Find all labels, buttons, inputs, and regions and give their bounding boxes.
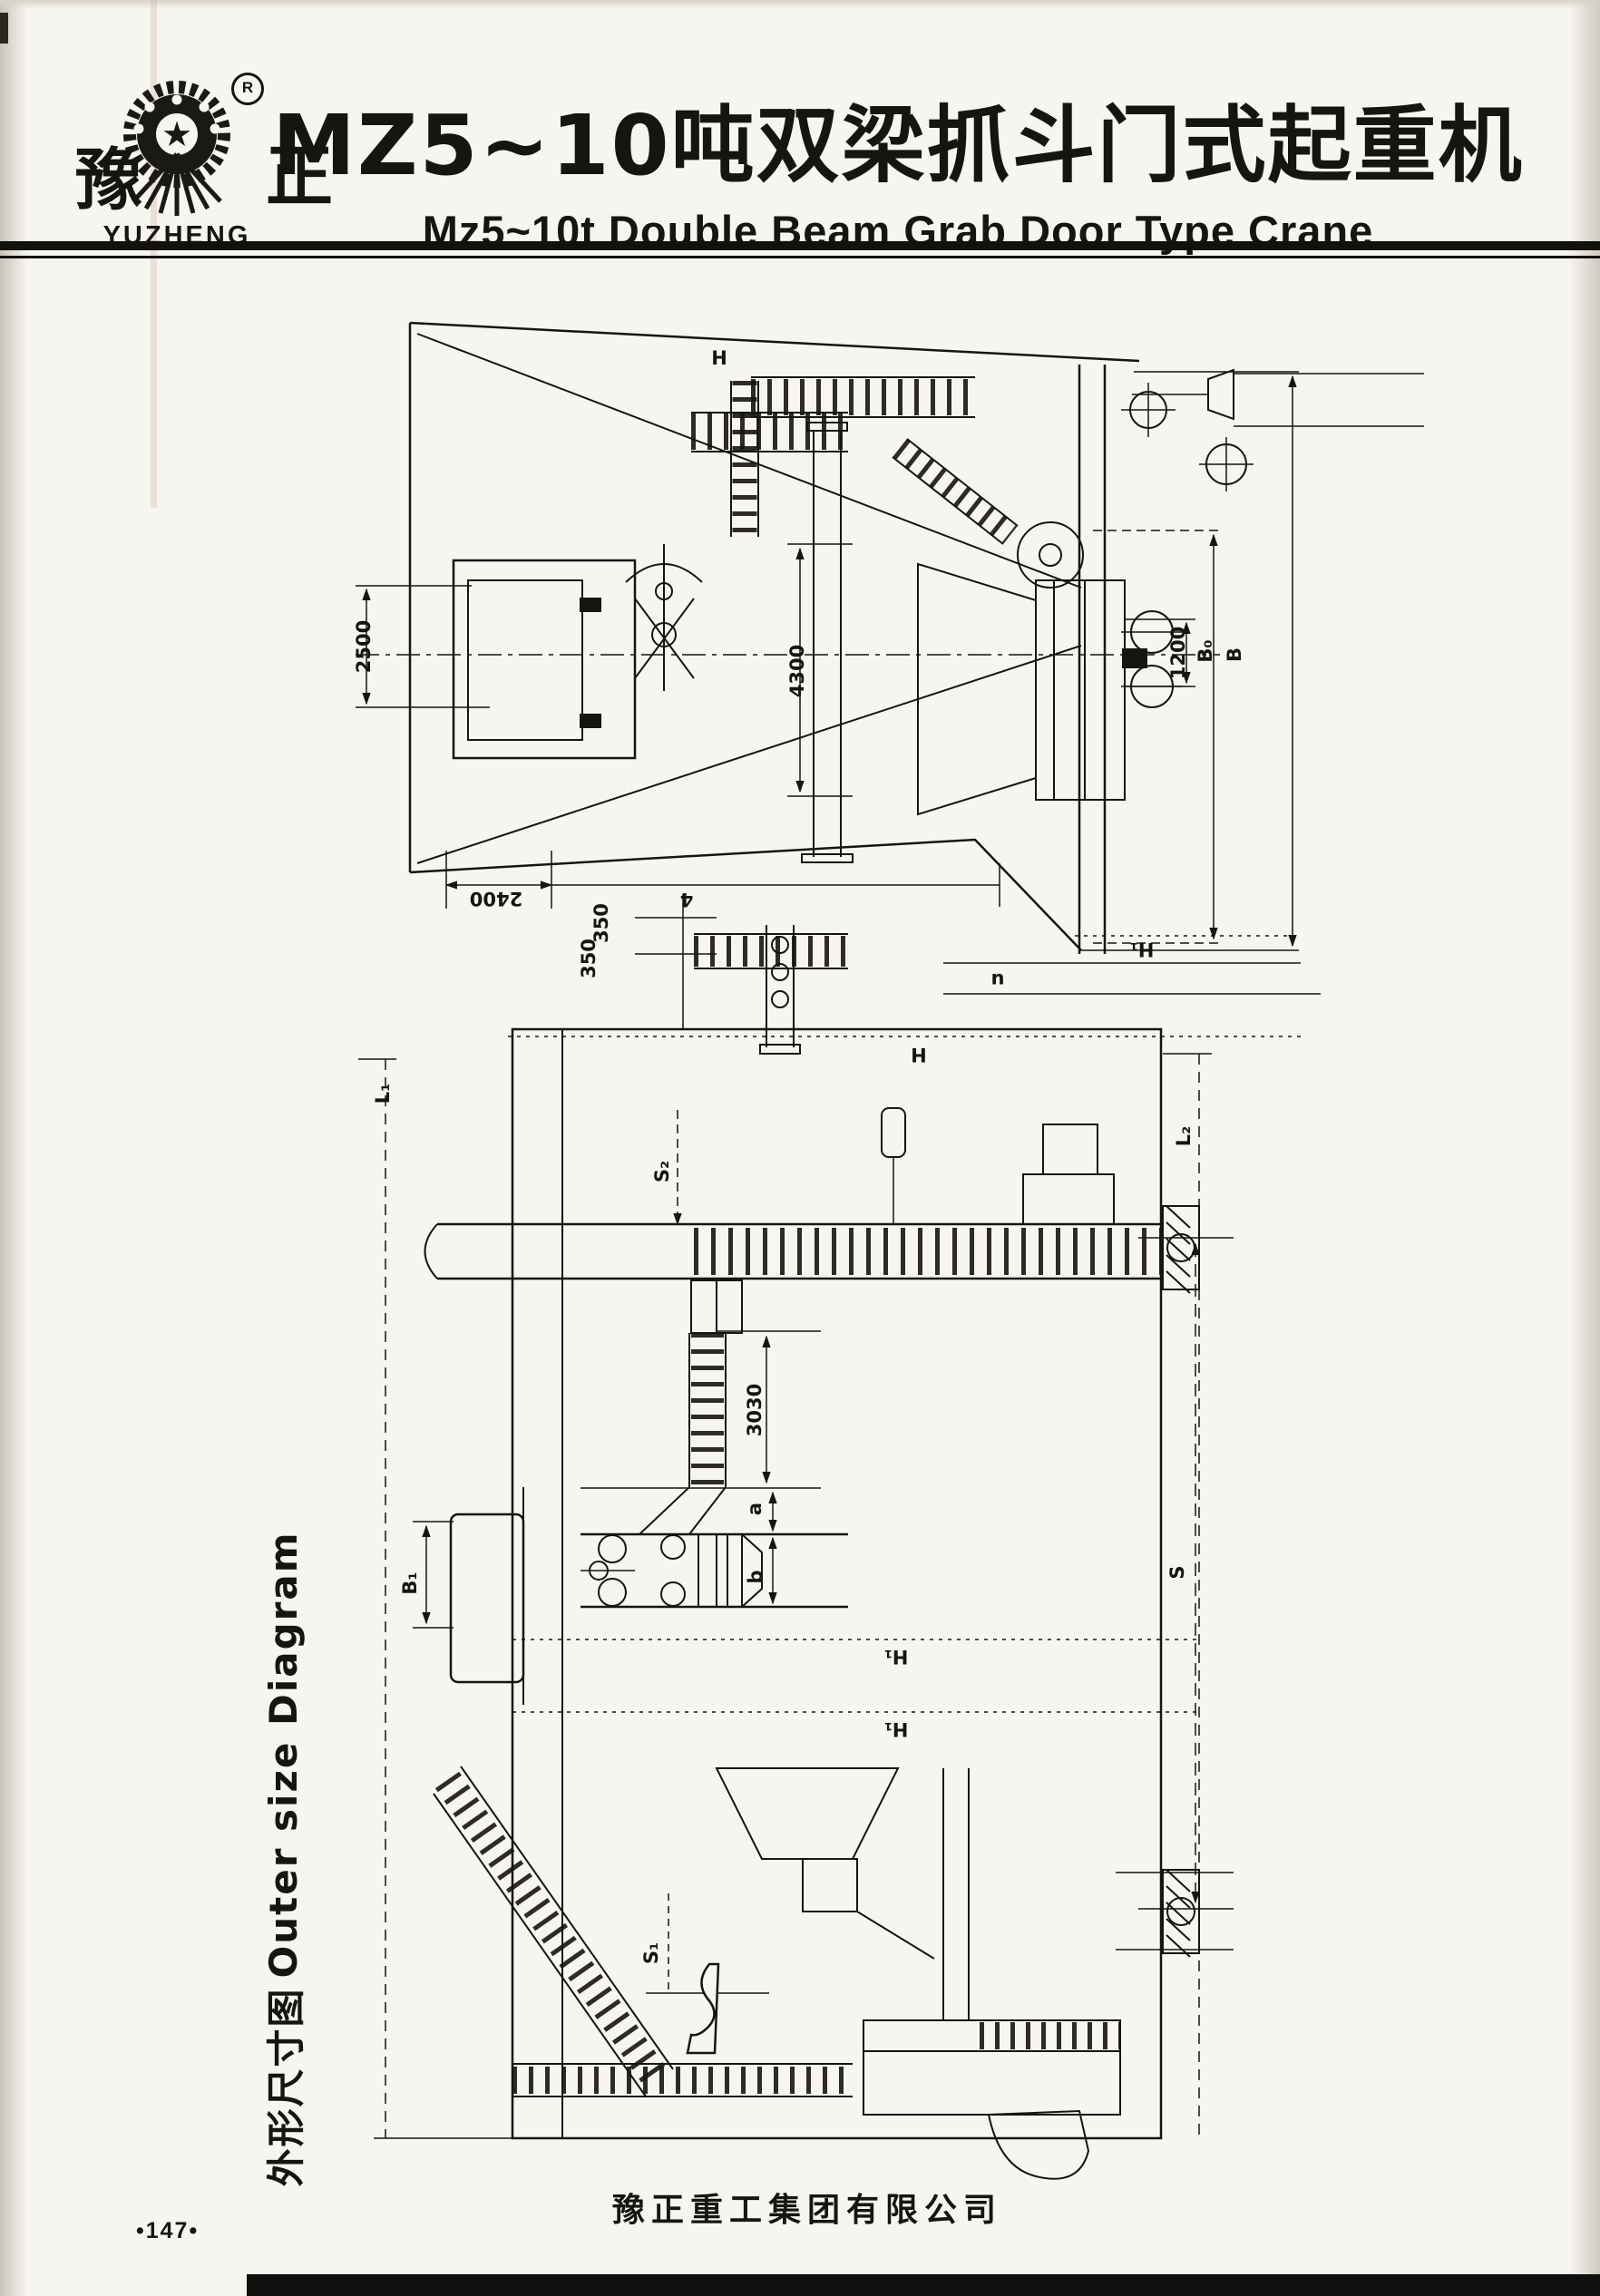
dimension-label: 2400 [470, 888, 522, 910]
dimension-label: B₀ [1195, 639, 1216, 662]
dimension-labels: H250043001200B₀B24004350350H₁uHL₁L₂S₂303… [353, 347, 1245, 1964]
dimension-label: 350 [578, 939, 600, 978]
dimension-label: H₁ [1130, 939, 1155, 960]
dimension-label: 2500 [353, 620, 375, 673]
front-view [358, 1029, 1234, 2179]
scan-bottom-bar [247, 2274, 1600, 2296]
dimension-label: H [711, 347, 727, 369]
dimension-label: H₁ [884, 1718, 909, 1740]
dimension-label: L₁ [372, 1084, 394, 1104]
ladder-strips [691, 377, 1018, 544]
dimension-label: H [911, 1044, 927, 1065]
diagram-caption-cn: 外形尺寸图 [256, 1987, 311, 2186]
dimension-label: S₁ [640, 1942, 662, 1964]
diagram-caption-en: Outer size Diagram [261, 1532, 306, 1979]
dimension-label: B₁ [399, 1571, 421, 1594]
dimension-label: u [991, 969, 1005, 991]
dimension-label: 4300 [786, 645, 808, 697]
dimension-label: b [745, 1570, 766, 1583]
dimension-label: 350 [590, 903, 612, 943]
dimension-label: 4 [680, 889, 694, 910]
top-view [356, 323, 1424, 1054]
diagram-caption: 外形尺寸图Outer size Diagram [192, 1578, 374, 2140]
ground-hatch [1166, 1206, 1190, 1957]
dimension-label: H₁ [884, 1646, 909, 1668]
catalog-page: 豫 正 R ★ YUZHENG [0, 0, 1600, 2296]
dimension-label: S [1166, 1565, 1188, 1579]
dimension-label: 1200 [1167, 627, 1189, 679]
dimension-label: B [1224, 647, 1245, 662]
dimension-label: 3030 [744, 1384, 766, 1436]
dimension-label: a [744, 1503, 766, 1515]
footer-company: 豫正重工集团有限公司 [580, 2184, 1034, 2231]
dimension-label: S₂ [651, 1161, 673, 1182]
dimension-label: L₂ [1173, 1126, 1195, 1147]
page-number: •147• [136, 2218, 199, 2244]
